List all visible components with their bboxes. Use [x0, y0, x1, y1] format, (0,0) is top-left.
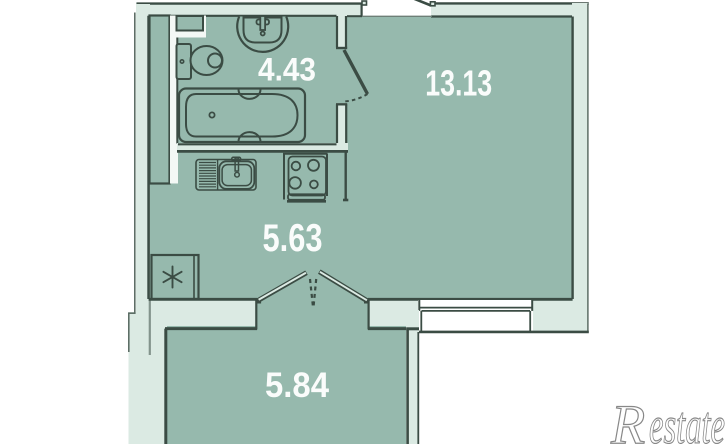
svg-text:4.43: 4.43 [258, 51, 316, 87]
svg-text:5.63: 5.63 [263, 217, 323, 260]
svg-text:estate: estate [649, 397, 725, 444]
svg-text:13.13: 13.13 [425, 62, 492, 103]
svg-text:5.84: 5.84 [265, 366, 329, 405]
svg-text:R: R [610, 394, 645, 444]
